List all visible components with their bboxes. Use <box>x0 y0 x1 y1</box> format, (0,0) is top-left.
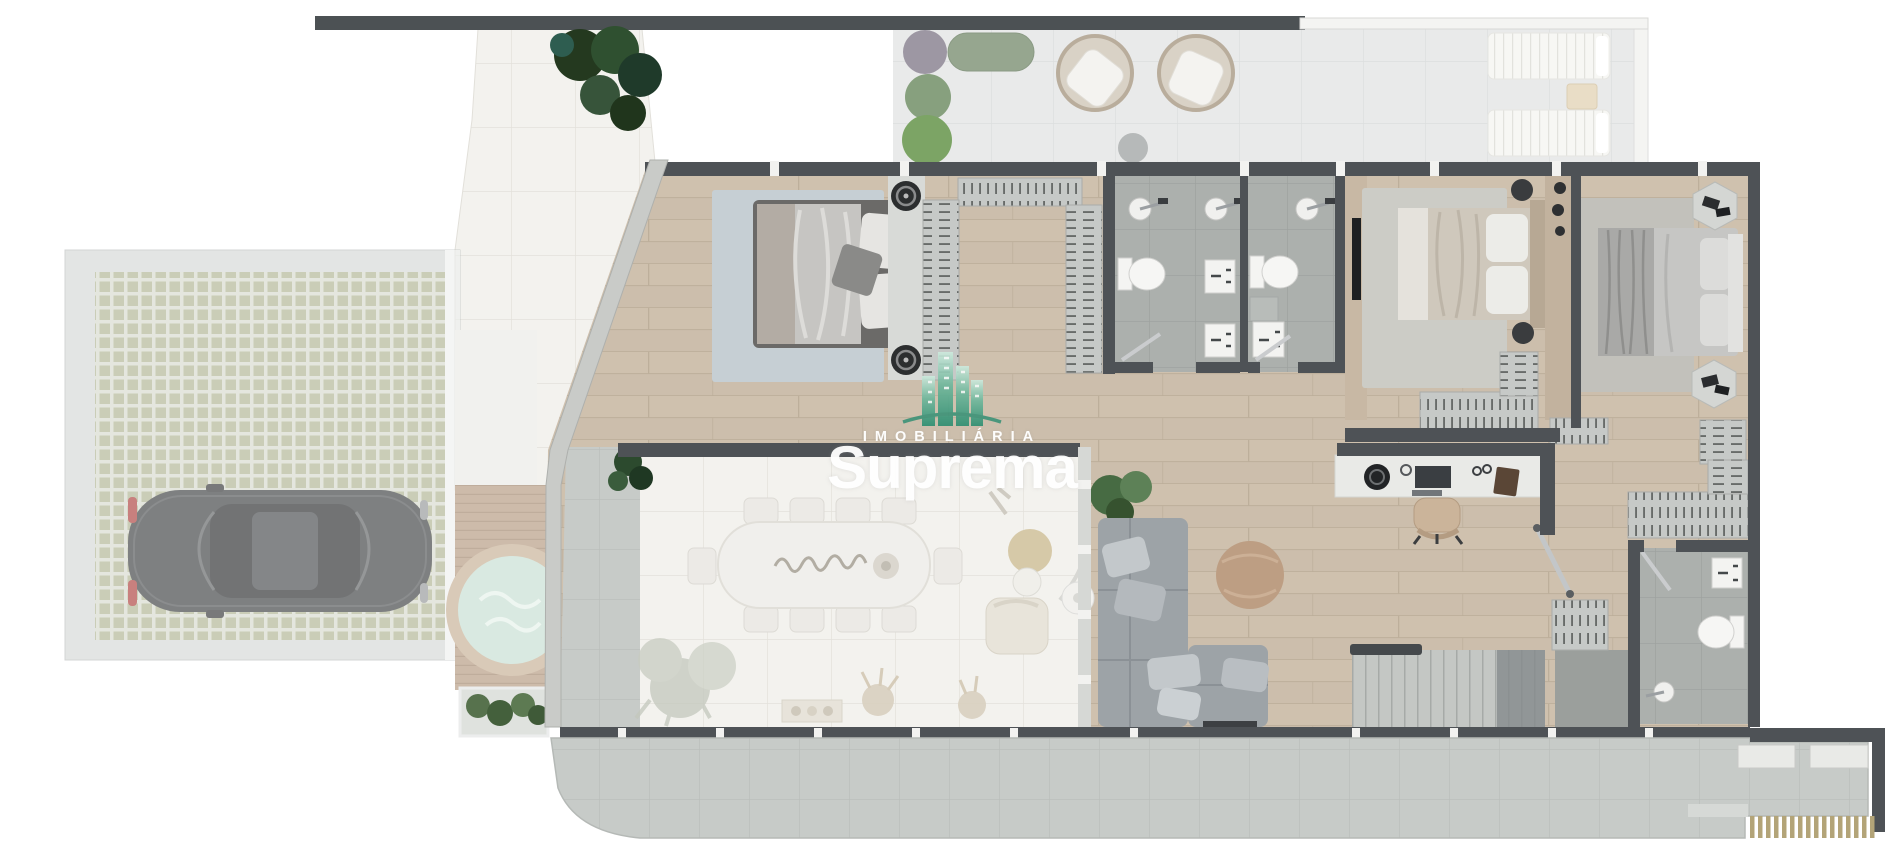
bath-mid-wall <box>1240 162 1248 372</box>
bath1-bottom-wall <box>1113 362 1153 373</box>
toilet <box>1250 256 1298 288</box>
dining-side-walk <box>560 447 640 727</box>
throw <box>757 204 795 344</box>
slat-fence <box>1750 816 1875 838</box>
top-boundary-wall <box>315 16 1305 30</box>
bath2-bottom-wall <box>1248 362 1260 373</box>
speaker <box>1511 179 1533 201</box>
planter-box <box>1738 745 1795 768</box>
pillow <box>1220 657 1270 693</box>
wardrobe <box>1420 392 1538 430</box>
terrace <box>893 24 1648 165</box>
speaker <box>1512 322 1534 344</box>
lounger-pillow <box>1596 113 1608 153</box>
floor-plan-render: IMOBILIÁRIA Suprema <box>0 0 1900 850</box>
bath3-left-wall <box>1628 540 1640 727</box>
toilet <box>1698 616 1744 648</box>
shelf <box>1250 297 1278 321</box>
pillow <box>1700 294 1730 346</box>
pillow <box>1486 214 1528 262</box>
bathroom-2 <box>1248 170 1335 372</box>
speaker <box>891 181 921 211</box>
house-top-wall <box>645 162 1758 176</box>
bed2-bottom-wall <box>1345 428 1560 442</box>
terrace-right-wall <box>1634 24 1648 164</box>
toilet <box>1118 258 1165 290</box>
side-table-small <box>1013 568 1041 596</box>
dresser <box>1700 420 1746 464</box>
bath1-bottom-wall <box>1196 362 1240 373</box>
round-pouf <box>1216 541 1284 609</box>
bath2-right-wall <box>1335 162 1345 372</box>
closet-l <box>1628 492 1748 538</box>
curb-step <box>1688 804 1748 817</box>
marble-pad <box>455 330 537 487</box>
egg-chair <box>1159 36 1233 110</box>
pillow <box>1700 238 1730 290</box>
hedge-oval <box>948 33 1034 71</box>
banister <box>1350 644 1422 655</box>
porch-top-wall <box>1750 728 1885 742</box>
apron-walkway <box>551 738 1868 838</box>
dining-top-wall <box>618 443 1080 457</box>
tv <box>1352 218 1361 300</box>
bathroom-3 <box>1638 548 1750 724</box>
terrace-top-wall <box>1300 18 1648 29</box>
bed2-bed3-wall <box>1571 162 1581 428</box>
bush-purple <box>903 30 947 74</box>
taillight <box>128 497 137 523</box>
coffee-table <box>1008 529 1052 573</box>
wardrobe <box>1500 352 1538 396</box>
stair-landing <box>1555 650 1630 727</box>
headboard <box>1728 234 1743 352</box>
bathroom-1 <box>1113 170 1244 372</box>
side-table <box>1567 84 1597 109</box>
speaker <box>891 345 921 375</box>
pillow <box>1146 653 1201 690</box>
car <box>128 484 432 618</box>
office-right-wall <box>1540 443 1555 535</box>
bath1-left-wall <box>1103 162 1115 374</box>
turntable <box>1364 464 1390 490</box>
lounger-pillow <box>1596 36 1608 76</box>
sun-lounger <box>1488 110 1610 156</box>
hall-wardrobe <box>1552 600 1608 650</box>
sun-lounger <box>1488 33 1610 79</box>
book <box>1493 467 1520 497</box>
office-top-wall <box>1337 443 1555 456</box>
garage <box>65 250 460 660</box>
closet-l <box>1708 460 1748 494</box>
bath3-top-wall <box>1676 540 1750 552</box>
bush-green <box>905 74 951 120</box>
pillow <box>1486 266 1528 314</box>
headboard <box>1530 200 1545 328</box>
stool <box>1118 133 1148 163</box>
house-right-wall <box>1748 162 1760 727</box>
egg-chair <box>1058 36 1132 110</box>
floor-plan-canvas <box>0 0 1900 850</box>
laptop <box>1415 466 1451 488</box>
taillight <box>128 580 137 606</box>
plant-bright <box>902 115 952 165</box>
sheet-fold <box>1398 208 1428 320</box>
bath2-bottom-wall <box>1298 362 1345 373</box>
master-bedroom <box>712 175 925 382</box>
planter-box <box>1810 745 1868 768</box>
